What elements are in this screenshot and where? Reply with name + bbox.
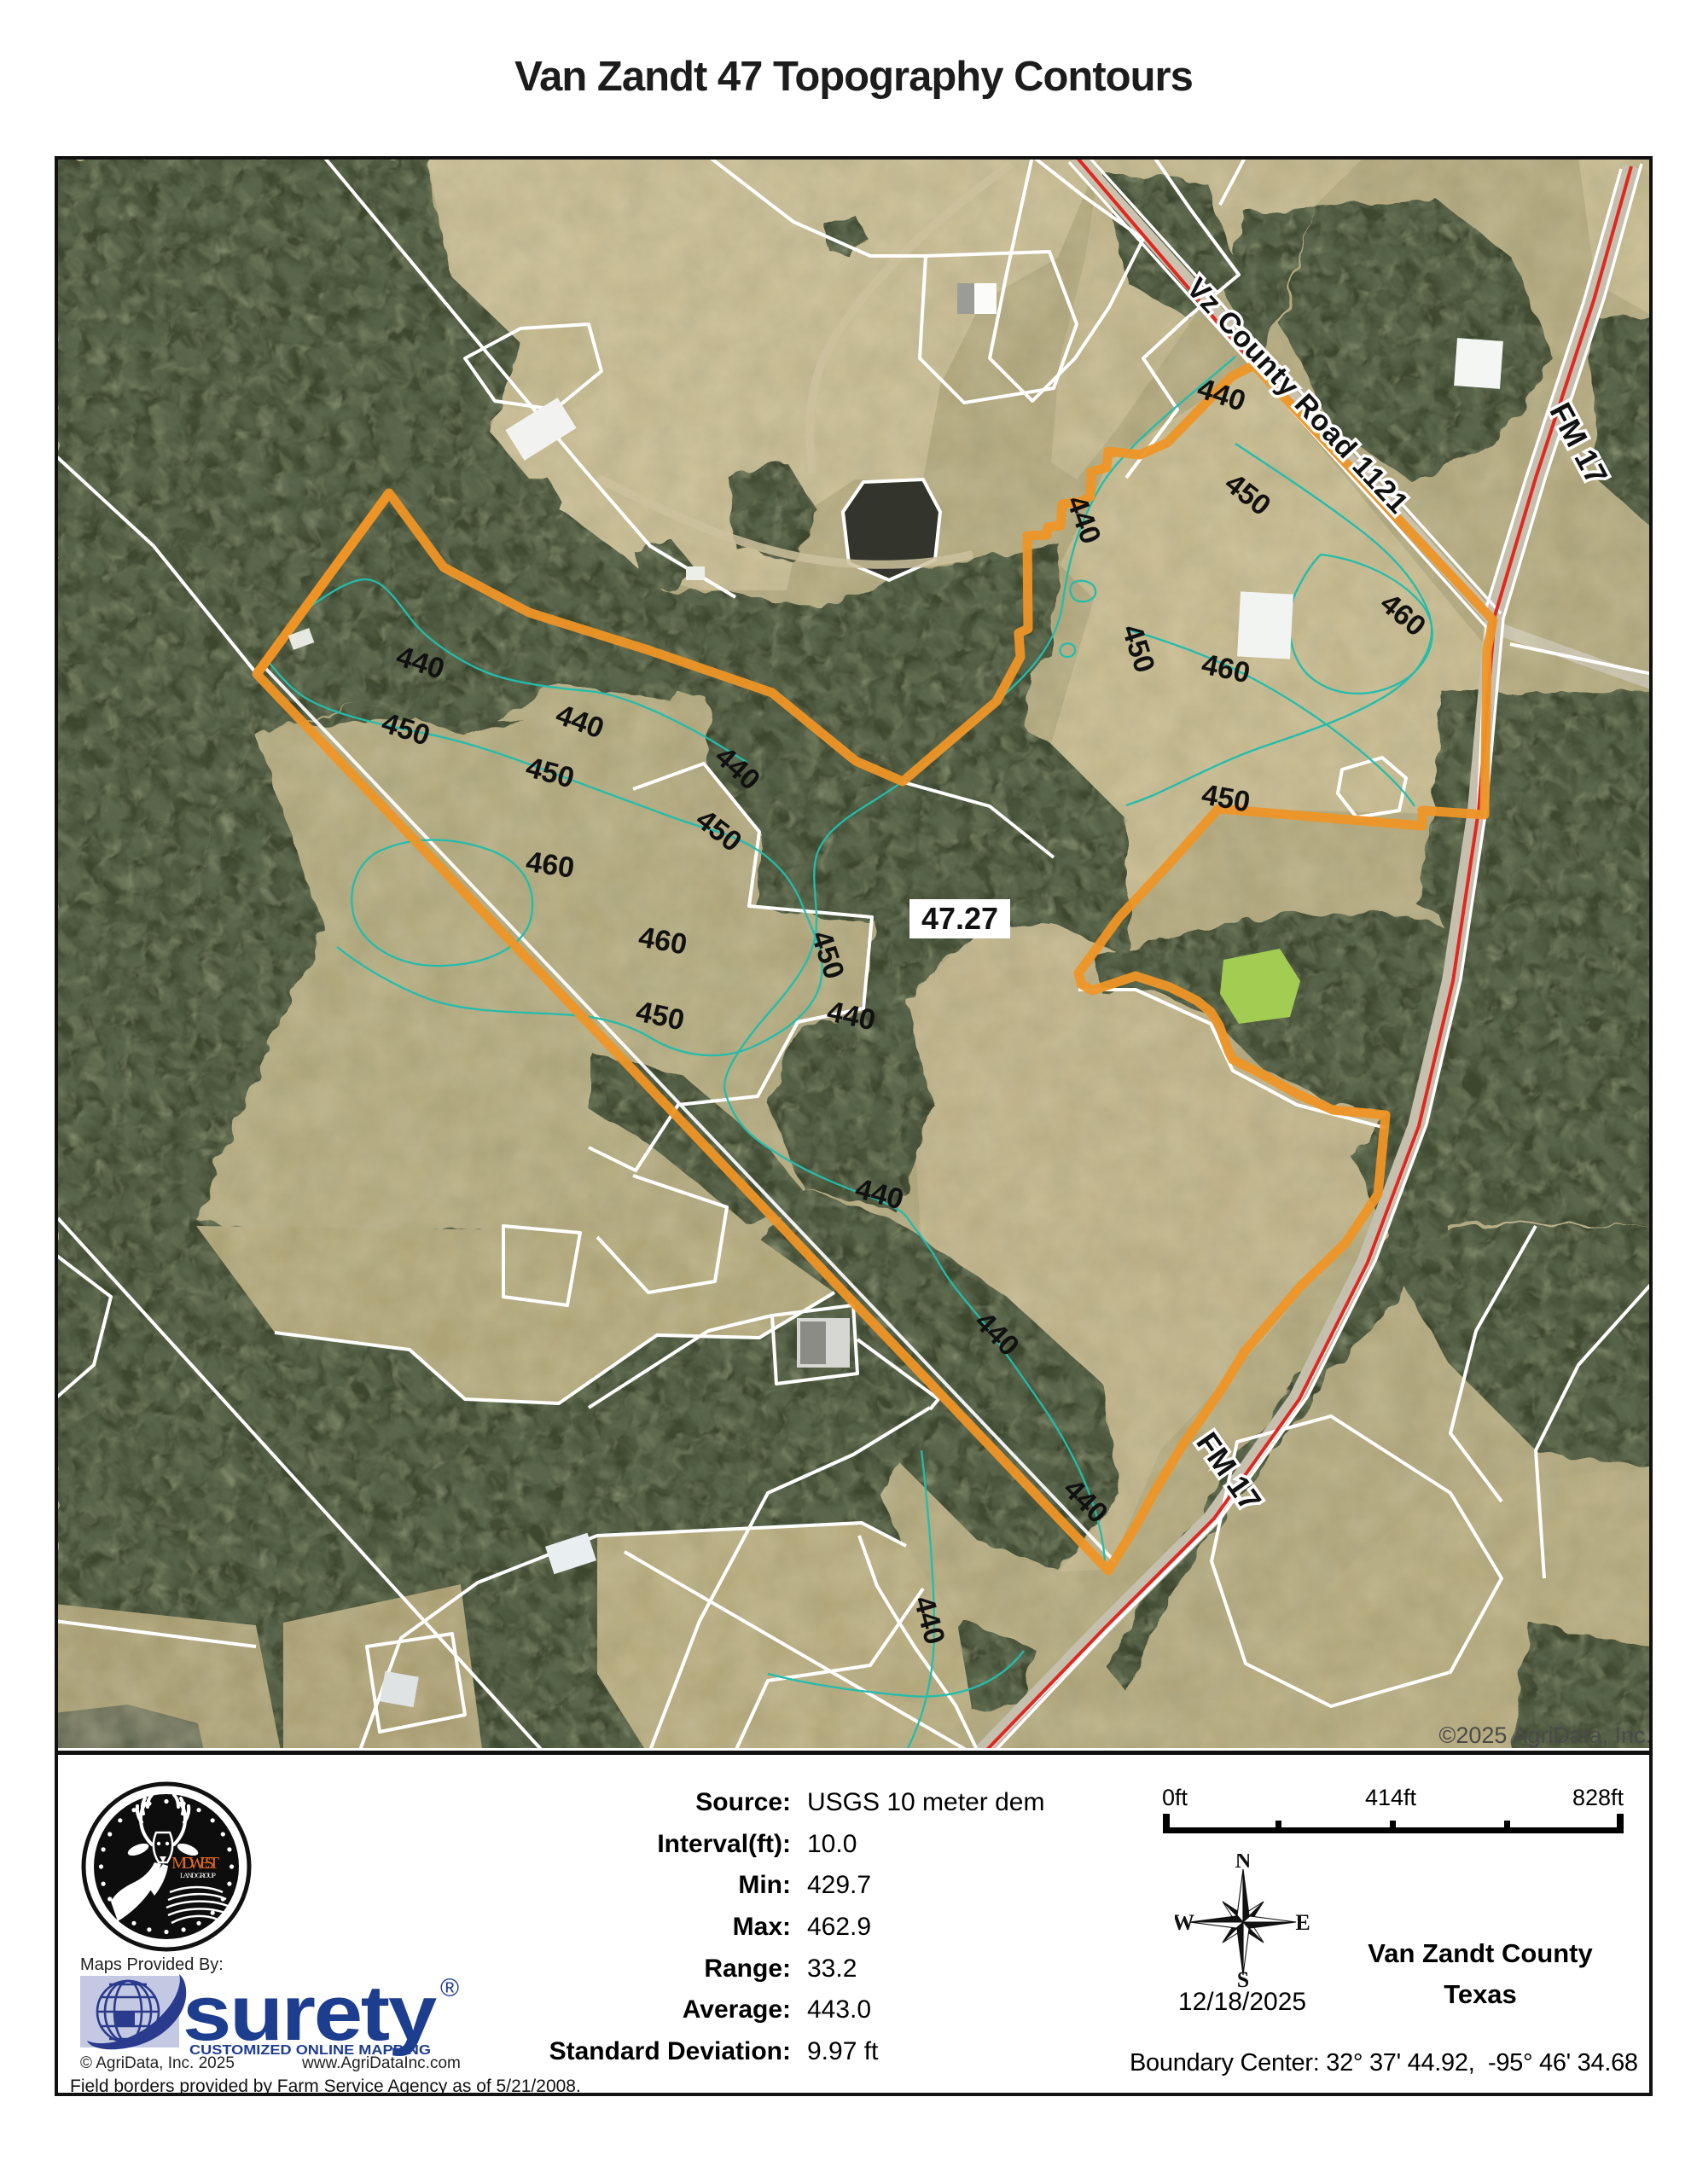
svg-text:W: W (1175, 1910, 1194, 1935)
svg-text:0ft: 0ft (1162, 1785, 1188, 1810)
svg-text:MIDWEST: MIDWEST (171, 1854, 219, 1873)
svg-text:©2025 AgriData, Inc.: ©2025 AgriData, Inc. (1438, 1722, 1649, 1748)
svg-text:N: N (1235, 1854, 1252, 1873)
svg-text:E: E (1295, 1910, 1310, 1935)
svg-text:828ft: 828ft (1572, 1785, 1624, 1810)
svg-text:47.27: 47.27 (921, 901, 998, 936)
svg-text:LAND GROUP: LAND GROUP (180, 1871, 216, 1879)
svg-text:414ft: 414ft (1365, 1785, 1417, 1810)
svg-text:460: 460 (524, 845, 576, 885)
svg-text:S: S (1237, 1967, 1249, 1990)
